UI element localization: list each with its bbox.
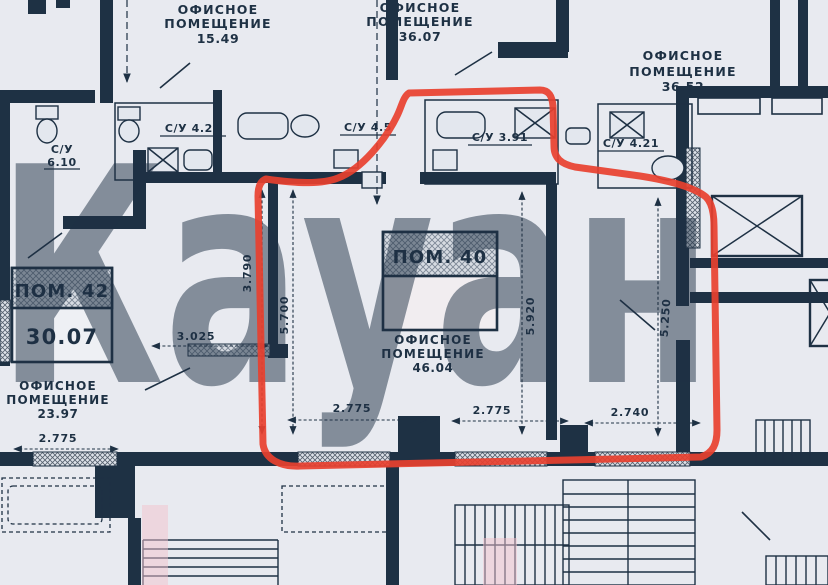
svg-text:ОФИСНОЕ: ОФИСНОЕ <box>643 48 724 63</box>
svg-text:ОФИСНОЕ: ОФИСНОЕ <box>380 0 461 15</box>
floor-plan-svg: 3.025 3.790 5.700 5.920 5.250 2.775 2.77… <box>0 0 828 585</box>
svg-text:ПОМЕЩЕНИЕ: ПОМЕЩЕНИЕ <box>164 16 271 31</box>
svg-text:36.52: 36.52 <box>662 79 705 94</box>
svg-text:36.07: 36.07 <box>399 29 442 44</box>
svg-text:ПОМЕЩЕНИЕ: ПОМЕЩЕНИЕ <box>629 64 736 79</box>
floor-plan-image: 3.025 3.790 5.700 5.920 5.250 2.775 2.77… <box>0 0 828 585</box>
svg-text:ПОМЕЩЕНИЕ: ПОМЕЩЕНИЕ <box>366 14 473 29</box>
svg-text:ОФИСНОЕ: ОФИСНОЕ <box>178 2 259 17</box>
watermark-text: Кауан <box>0 105 713 453</box>
svg-text:15.49: 15.49 <box>197 31 240 46</box>
